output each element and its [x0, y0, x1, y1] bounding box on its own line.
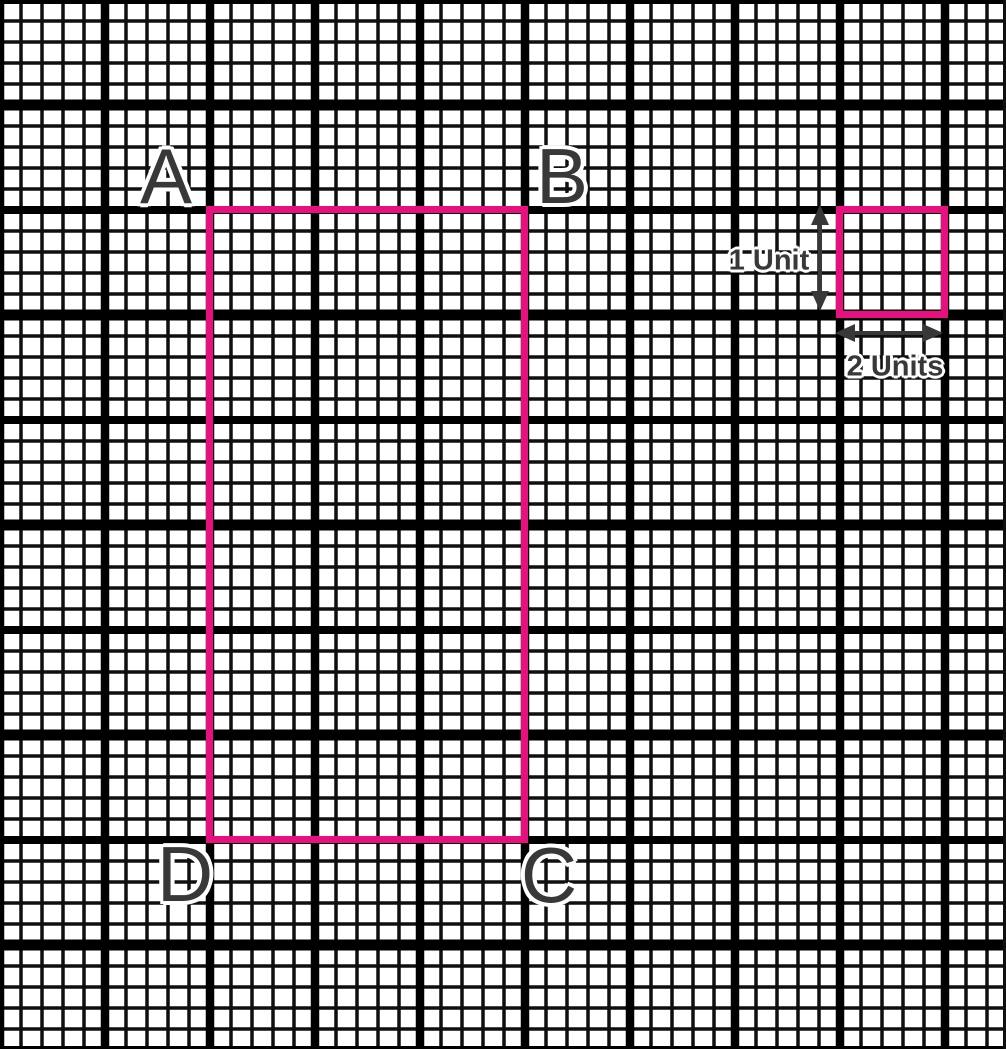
corner-label-c: C — [521, 836, 577, 914]
grid-paper: A B C D 1 Unit 2 Units — [0, 0, 1006, 1049]
vertical-double-arrow-icon — [808, 205, 832, 311]
vertical-unit-label: 1 Unit — [729, 245, 810, 278]
corner-label-b: B — [536, 137, 588, 215]
horizontal-double-arrow-icon — [835, 321, 943, 345]
unit-key-square — [836, 206, 948, 318]
horizontal-unit-label: 2 Units — [847, 351, 944, 384]
corner-label-d: D — [157, 835, 213, 913]
rectangle-abcd — [206, 206, 528, 843]
corner-label-a: A — [140, 137, 192, 215]
